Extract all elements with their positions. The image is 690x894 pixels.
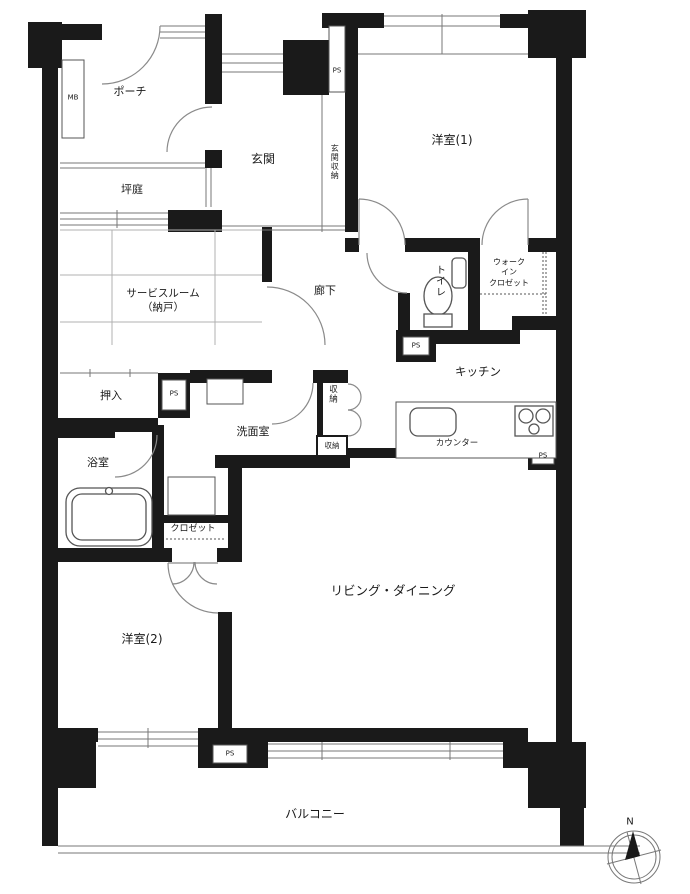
compass — [607, 831, 661, 884]
label-toilet: トイレ — [433, 265, 446, 298]
label-counter: カウンター — [436, 438, 479, 449]
washing-machine — [207, 379, 243, 404]
label-living-dining: リビング・ダイニング — [330, 583, 455, 599]
kitchen-counter — [396, 402, 556, 458]
label-ps-balcony: PS — [226, 749, 235, 758]
label-entrance-storage: 玄関収納 — [329, 144, 339, 180]
ps-boxes — [62, 26, 554, 763]
vanity — [168, 477, 215, 515]
label-ps-toilet: PS — [412, 341, 421, 350]
label-entrance: 玄関 — [251, 152, 275, 168]
label-walk-in-closet: ウォーク イン クロゼット — [489, 257, 529, 288]
wic-line1: ウォーク — [489, 257, 529, 267]
label-oshiire: 押入 — [100, 389, 122, 403]
label-western-room-1: 洋室(1) — [432, 133, 473, 149]
balcony-railing — [58, 846, 640, 853]
label-closet: クロゼット — [170, 524, 215, 536]
label-ps-top: PS — [333, 66, 342, 75]
bathtub — [66, 488, 152, 547]
label-ps-oshiire: PS — [170, 389, 179, 398]
label-porch: ポーチ — [114, 85, 147, 99]
label-north: N — [626, 816, 633, 829]
service-room-line1: サービスルーム — [126, 287, 199, 301]
wic-line2: イン — [489, 268, 529, 278]
floor-plan-drawing — [0, 0, 690, 894]
label-balcony: バルコニー — [285, 807, 345, 823]
label-bathroom: 浴室 — [87, 456, 109, 470]
label-ps-kitchen: PS — [539, 451, 548, 460]
kitchen-sink — [410, 408, 456, 436]
ps-box-top — [329, 26, 345, 92]
floor-plan: ポーチ MB 坪庭 玄関 玄関収納 洋室(1) トイレ ウォーク イン クロゼッ… — [0, 0, 690, 894]
service-room-line2: （納戸） — [126, 301, 199, 315]
label-storage-small: 収納 — [325, 441, 340, 451]
label-hallway: 廊下 — [314, 284, 336, 298]
label-storage: 収納 — [326, 385, 337, 404]
label-meter-box: MB — [68, 93, 79, 102]
label-kitchen: キッチン — [455, 365, 501, 380]
door-arcs — [102, 26, 528, 613]
label-washroom: 洗面室 — [237, 425, 270, 439]
windows — [60, 14, 528, 760]
label-service-room: サービスルーム （納戸） — [126, 287, 199, 314]
wic-line3: クロゼット — [489, 278, 529, 288]
label-western-room-2: 洋室(2) — [122, 632, 163, 648]
label-tsubo-garden: 坪庭 — [121, 183, 143, 197]
